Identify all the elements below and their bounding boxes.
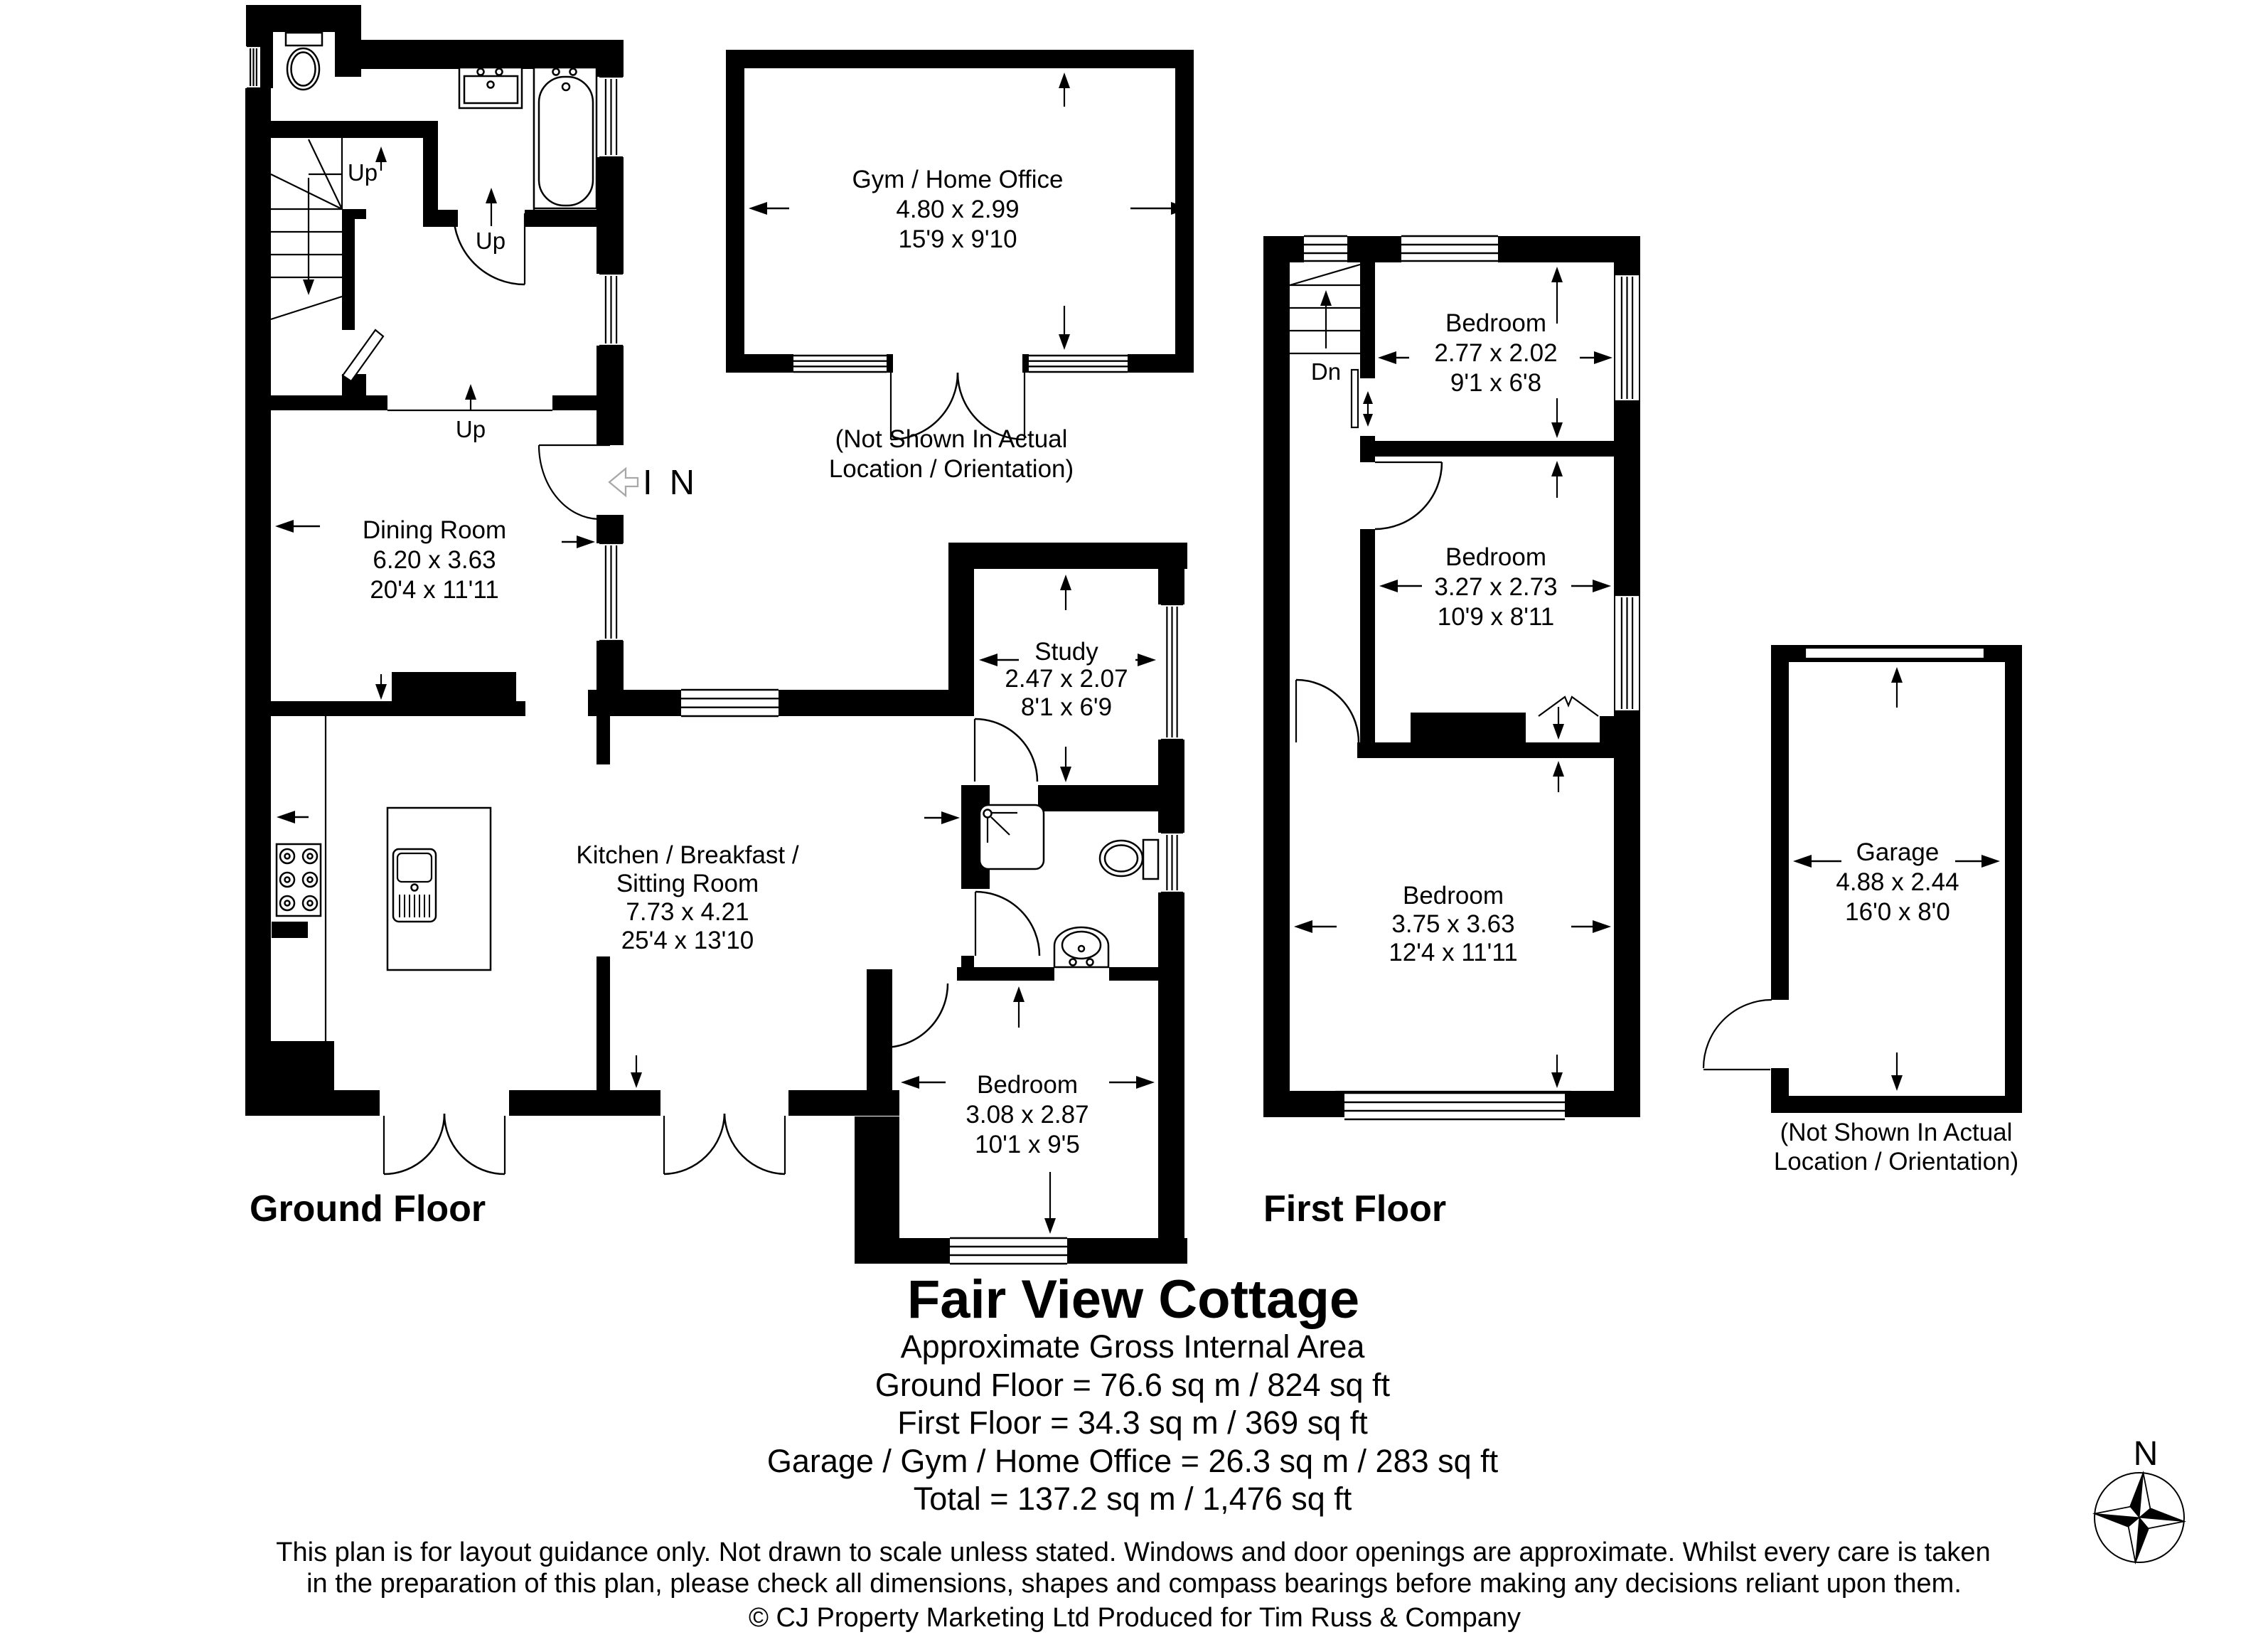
svg-text:Dn: Dn — [1311, 358, 1341, 385]
svg-text:25'4 x 13'10: 25'4 x 13'10 — [621, 927, 754, 954]
svg-text:Garage / Gym / Home Office = 2: Garage / Gym / Home Office = 26.3 sq m /… — [767, 1443, 1499, 1479]
svg-text:Garage: Garage — [1856, 838, 1940, 866]
svg-text:4.88 x 2.44: 4.88 x 2.44 — [1836, 868, 1959, 896]
svg-text:12'4 x 11'11: 12'4 x 11'11 — [1389, 939, 1517, 966]
svg-text:Sitting Room: Sitting Room — [616, 870, 759, 897]
svg-text:First Floor: First Floor — [1263, 1188, 1446, 1230]
svg-text:Total = 137.2 sq m / 1,476 sq: Total = 137.2 sq m / 1,476 sq ft — [914, 1481, 1352, 1517]
svg-text:Up: Up — [348, 159, 378, 186]
svg-text:First Floor = 34.3 sq m / 369: First Floor = 34.3 sq m / 369 sq ft — [897, 1404, 1368, 1441]
svg-text:Dining Room: Dining Room — [363, 516, 506, 544]
svg-text:16'0 x 8'0: 16'0 x 8'0 — [1845, 898, 1950, 926]
svg-text:© CJ Property Marketing Ltd Pr: © CJ Property Marketing Ltd Produced for… — [749, 1603, 1521, 1633]
svg-text:20'4 x 11'11: 20'4 x 11'11 — [370, 576, 498, 604]
svg-text:3.75 x 3.63: 3.75 x 3.63 — [1391, 910, 1514, 938]
svg-text:Bedroom: Bedroom — [1403, 882, 1504, 910]
svg-text:Up: Up — [476, 228, 506, 254]
svg-text:4.80 x 2.99: 4.80 x 2.99 — [896, 196, 1019, 223]
svg-text:Bedroom: Bedroom — [1445, 309, 1546, 337]
svg-text:Location / Orientation): Location / Orientation) — [1774, 1148, 2018, 1175]
svg-text:2.47 x 2.07: 2.47 x 2.07 — [1005, 665, 1128, 693]
svg-text:Up: Up — [456, 416, 486, 442]
svg-text:7.73 x 4.21: 7.73 x 4.21 — [626, 898, 749, 926]
svg-text:Bedroom: Bedroom — [977, 1071, 1078, 1099]
svg-text:Ground Floor = 76.6 sq m / 824: Ground Floor = 76.6 sq m / 824 sq ft — [875, 1367, 1391, 1403]
svg-text:N: N — [2134, 1435, 2159, 1473]
svg-text:2.77 x 2.02: 2.77 x 2.02 — [1434, 339, 1557, 367]
svg-text:Ground Floor: Ground Floor — [250, 1188, 486, 1230]
svg-text:Gym / Home Office: Gym / Home Office — [852, 166, 1064, 193]
svg-text:10'1 x 9'5: 10'1 x 9'5 — [975, 1131, 1080, 1158]
svg-text:10'9 x 8'11: 10'9 x 8'11 — [1438, 603, 1555, 631]
svg-text:8'1 x 6'9: 8'1 x 6'9 — [1021, 693, 1112, 721]
svg-text:Approximate Gross Internal Are: Approximate Gross Internal Area — [901, 1328, 1366, 1365]
svg-text:in the preparation of this pla: in the preparation of this plan, please … — [306, 1569, 1962, 1599]
svg-text:Study: Study — [1034, 638, 1098, 666]
svg-text:(Not Shown In Actual: (Not Shown In Actual — [835, 425, 1068, 453]
svg-text:3.08 x 2.87: 3.08 x 2.87 — [965, 1101, 1088, 1129]
svg-text:6.20 x 3.63: 6.20 x 3.63 — [373, 546, 496, 574]
svg-text:IN: IN — [643, 464, 712, 502]
svg-text:15'9 x 9'10: 15'9 x 9'10 — [898, 225, 1017, 253]
svg-text:(Not Shown In Actual: (Not Shown In Actual — [1780, 1119, 2013, 1146]
svg-text:Fair View Cottage: Fair View Cottage — [907, 1269, 1359, 1330]
svg-text:This plan is for layout guidan: This plan is for layout guidance only. N… — [276, 1537, 1990, 1567]
svg-text:Kitchen / Breakfast /: Kitchen / Breakfast / — [576, 841, 798, 869]
svg-text:9'1 x 6'8: 9'1 x 6'8 — [1450, 369, 1541, 397]
svg-text:3.27 x 2.73: 3.27 x 2.73 — [1434, 573, 1557, 601]
svg-text:Bedroom: Bedroom — [1445, 543, 1546, 571]
svg-text:Location / Orientation): Location / Orientation) — [829, 455, 1074, 483]
